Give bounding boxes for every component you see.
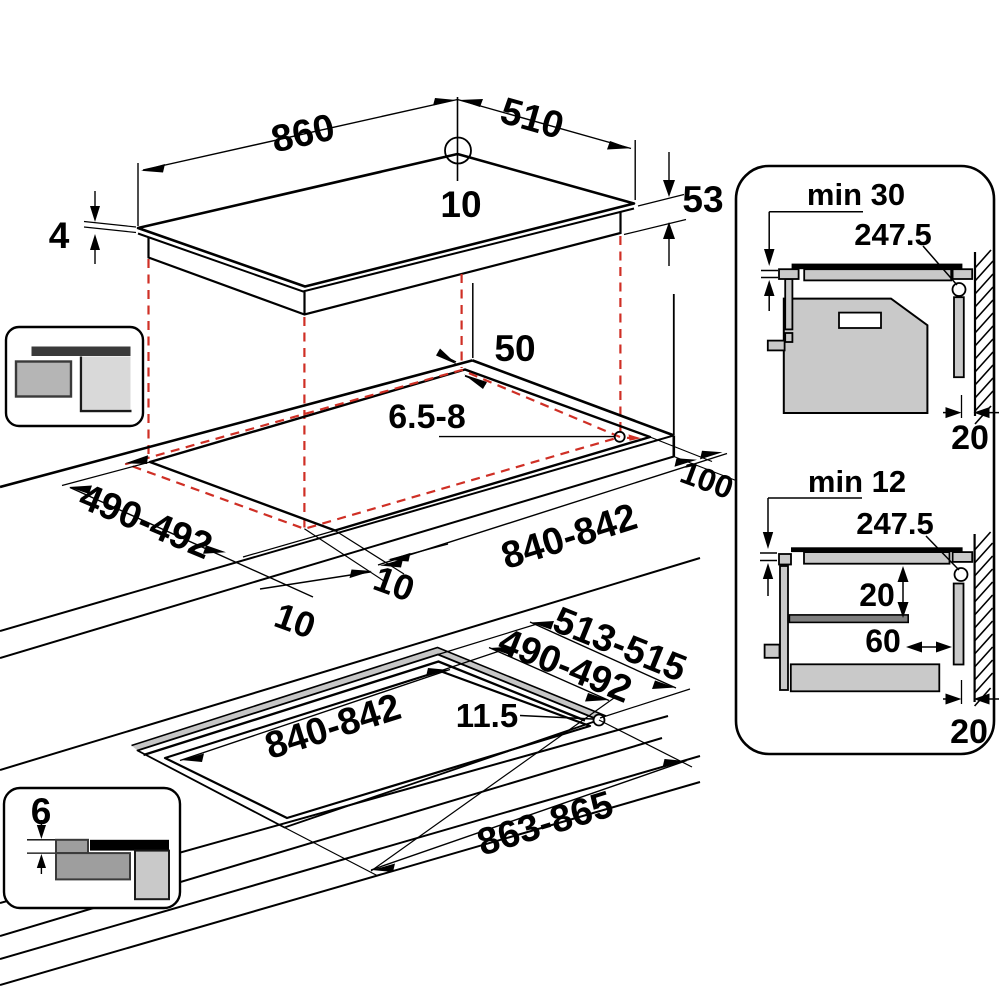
svg-text:6: 6 (31, 791, 52, 832)
svg-text:53: 53 (682, 179, 723, 220)
svg-text:863-865: 863-865 (472, 783, 618, 864)
svg-text:247.5: 247.5 (856, 506, 934, 541)
svg-text:840-842: 840-842 (496, 496, 642, 578)
svg-text:min 12: min 12 (808, 464, 906, 499)
svg-text:860: 860 (267, 107, 338, 162)
svg-text:10: 10 (368, 557, 420, 609)
svg-text:247.5: 247.5 (854, 217, 932, 252)
svg-text:11.5: 11.5 (456, 697, 518, 734)
svg-text:510: 510 (496, 90, 568, 148)
svg-text:60: 60 (865, 623, 901, 659)
svg-text:50: 50 (494, 328, 535, 369)
svg-text:100: 100 (676, 454, 739, 506)
svg-text:10: 10 (269, 594, 321, 646)
svg-text:10: 10 (440, 184, 481, 225)
svg-text:20: 20 (859, 577, 895, 613)
svg-text:20: 20 (951, 419, 989, 457)
svg-text:20: 20 (950, 713, 988, 751)
svg-text:6.5-8: 6.5-8 (388, 398, 466, 436)
svg-text:min 30: min 30 (807, 177, 905, 212)
svg-text:4: 4 (49, 215, 70, 256)
